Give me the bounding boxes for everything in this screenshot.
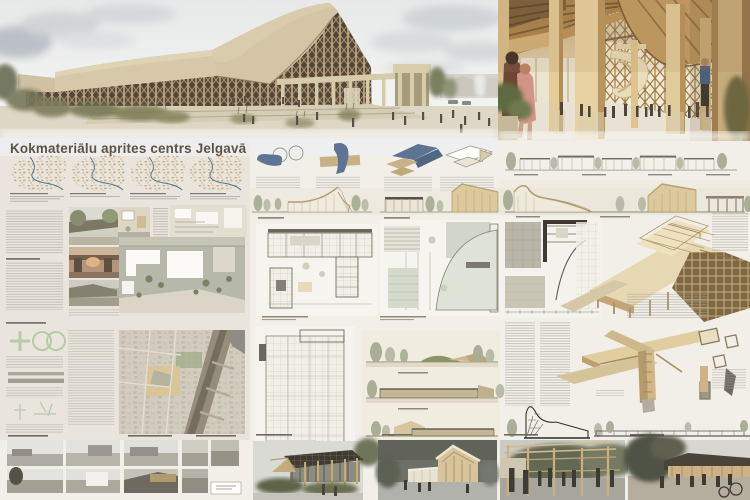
svg-text:Kokmateriālu aprites centrs Je: Kokmateriālu aprites centrs Jelgavā (10, 141, 247, 156)
